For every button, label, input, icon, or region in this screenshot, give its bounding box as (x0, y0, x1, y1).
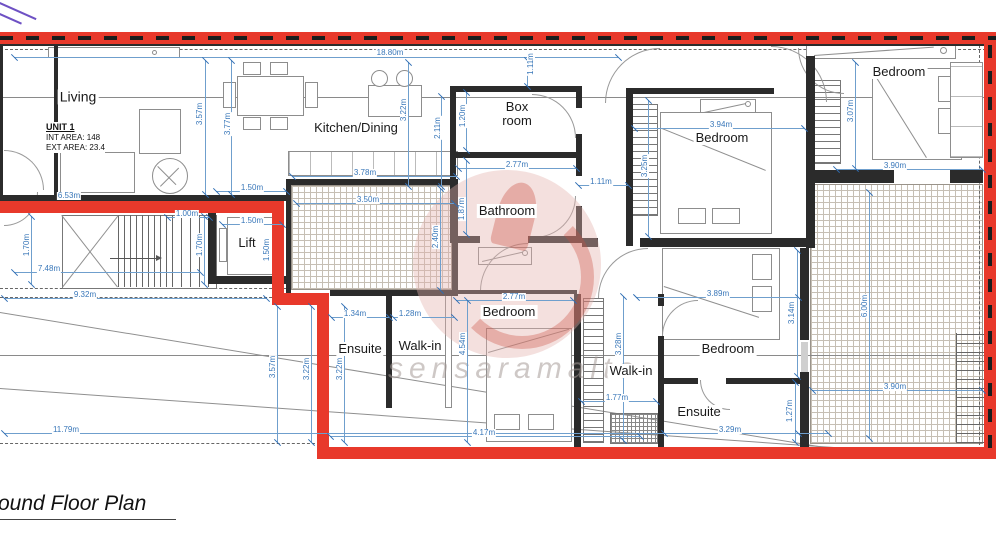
room-label: Bedroom (481, 305, 538, 319)
wall (450, 86, 582, 92)
dimension-label: 1.34m (343, 310, 367, 318)
dimension-label: 3.14m (788, 301, 796, 325)
wall (658, 294, 664, 306)
room-label: Bathroom (477, 204, 537, 218)
dimension-line (869, 192, 870, 438)
pillow (712, 208, 740, 224)
pillow (752, 286, 772, 312)
wall (950, 170, 983, 183)
bench-seat (950, 62, 983, 158)
dimension-label: 2.40m (432, 225, 440, 249)
dimension-line (466, 160, 467, 234)
dimension-label: 1.28m (398, 310, 422, 318)
room-label: Walk-in (608, 364, 655, 378)
door-arc (532, 94, 576, 138)
wall (576, 158, 582, 176)
dimension-label: 1.50m (263, 238, 271, 262)
dimension-label: 9.32m (73, 291, 97, 299)
pillow (494, 414, 520, 430)
unit-name: UNIT 1 (46, 122, 105, 133)
window-opening (801, 342, 808, 372)
dimension-line (311, 306, 312, 442)
dimension-label: 18.80m (376, 49, 405, 57)
dining-chair (270, 62, 288, 75)
room-label: Walk-in (397, 339, 444, 353)
section-line-upper (0, 97, 996, 98)
dimension-label: 1.70m (23, 233, 31, 257)
unit-boundary-bottom (317, 447, 996, 459)
lift-door (219, 228, 227, 262)
dimension-label: 1.20m (459, 104, 467, 128)
wall (726, 378, 800, 384)
dimension-label: 3.22m (336, 357, 344, 381)
wall (626, 88, 774, 94)
dimension-label: 1.27m (786, 399, 794, 423)
dimension-label: 6.53m (57, 192, 81, 200)
dimension-label: 3.28m (615, 332, 623, 356)
dimension-label: 4.54m (459, 332, 467, 356)
dimension-label: 3.25m (641, 154, 649, 178)
room-label: Bedroom (694, 131, 751, 145)
stair-direction-line (110, 258, 156, 259)
dimension-label: 7.48m (37, 265, 61, 273)
dimension-label: 3.29m (718, 426, 742, 434)
dining-chair (223, 82, 236, 108)
wall (640, 238, 808, 247)
dimension-label: 3.89m (706, 290, 730, 298)
dimension-label: 1.11m (589, 178, 613, 186)
room-label: Ensuite (675, 405, 722, 419)
wall (806, 88, 815, 248)
dimension-label: 3.50m (356, 196, 380, 204)
dimension-label: 2.11m (434, 116, 442, 140)
dimension-label: 1.00m (175, 210, 199, 218)
tv-unit-knob (152, 50, 157, 55)
dimension-label: 4.17m (472, 429, 496, 437)
watermark-text: sensaramalta (388, 352, 718, 386)
dimension-label: 6.00m (861, 294, 869, 318)
dimension-label: 2.77m (505, 161, 529, 169)
dimension-line (277, 306, 278, 442)
dimension-line (204, 216, 205, 284)
dimension-line (441, 96, 442, 186)
door-arc (598, 248, 648, 298)
dimension-label: 2.77m (502, 293, 526, 301)
stair-treads (118, 215, 172, 287)
pillow (528, 414, 554, 430)
dimension-label: 3.22m (400, 98, 408, 122)
dining-chair (243, 117, 261, 130)
dimension-line (440, 188, 441, 290)
dimension-label: 1.50m (240, 184, 264, 192)
dimension-label: 3.57m (196, 102, 204, 126)
dimension-label: 3.07m (847, 99, 855, 123)
radiator-valve (745, 101, 751, 107)
wall (806, 170, 894, 183)
unit-int-area: INT AREA: 148 (46, 133, 105, 143)
dimension-line (344, 306, 345, 442)
unit-info: UNIT 1 INT AREA: 148 EXT AREA: 23.4 (46, 122, 105, 153)
radiator-valve (940, 47, 947, 54)
dimension-label: 11.79m (52, 426, 80, 434)
wall (450, 86, 456, 158)
unit-boundary-lift-top (0, 201, 284, 213)
pillow (678, 208, 706, 224)
dimension-label: 3.57m (269, 355, 277, 379)
pillow (752, 254, 772, 280)
wall (800, 248, 809, 340)
wall (0, 46, 3, 197)
wall (286, 179, 291, 296)
sofa (60, 152, 135, 193)
bar-stool (396, 70, 413, 87)
wall (288, 179, 458, 185)
wall (626, 88, 633, 246)
room-label: Kitchen/Dining (312, 121, 400, 135)
dimension-label: 3.22m (303, 357, 311, 381)
marker-line-2 (0, 13, 22, 25)
dimension-line (205, 60, 206, 194)
floor-plan-canvas: sensaramalta UNIT 1 INT AREA: 148 EXT AR… (0, 0, 1000, 550)
room-label: Living (58, 89, 99, 104)
dimension-label: 1.50m (240, 217, 264, 225)
dimension-label: 1.11m (527, 52, 535, 76)
dimension-line (855, 62, 856, 168)
dimension-line (31, 216, 32, 284)
dimension-label: 3.90m (883, 383, 907, 391)
wall (576, 134, 582, 158)
party-wall-dashes (0, 36, 996, 40)
dining-table (237, 76, 304, 116)
dimension-line (4, 298, 266, 299)
room-label: Bedroom (700, 342, 757, 356)
page-title: ound Floor Plan (0, 492, 176, 520)
bar-stool (371, 70, 388, 87)
dimension-line (4, 433, 828, 434)
door-arc (4, 150, 44, 190)
dining-chair (270, 117, 288, 130)
party-wall-dashes-right (988, 44, 992, 448)
kitchen-island (368, 85, 422, 117)
wall (576, 92, 582, 108)
dimension-line (408, 62, 409, 186)
unit-ext-area: EXT AREA: 23.4 (46, 143, 105, 153)
unit-boundary-lift-right (272, 201, 284, 305)
dimension-label: 3.78m (353, 169, 377, 177)
dimension-label: 3.77m (224, 112, 232, 136)
dining-chair (305, 82, 318, 108)
stair-direction-arrowhead (156, 255, 162, 261)
wall (386, 294, 392, 408)
room-label: Bedroom (871, 65, 928, 79)
dimension-line (797, 250, 798, 376)
shower-tray (610, 413, 658, 444)
dimension-label: 3.90m (883, 162, 907, 170)
room-label: Box room (500, 100, 534, 128)
wall (806, 56, 815, 88)
wall (0, 44, 996, 46)
dimension-label: 1.70m (196, 233, 204, 257)
dimension-label: 3.94m (709, 121, 733, 129)
boundary-dash-bottom (0, 443, 320, 444)
dimension-label: 1.77m (605, 394, 629, 402)
armchair (139, 109, 181, 154)
dining-chair (243, 62, 261, 75)
dimension-label: 1.87m (458, 197, 466, 221)
room-label: Lift (236, 236, 257, 250)
room-label: Ensuite (336, 342, 383, 356)
dimension-line (467, 300, 468, 442)
wall (208, 213, 216, 277)
